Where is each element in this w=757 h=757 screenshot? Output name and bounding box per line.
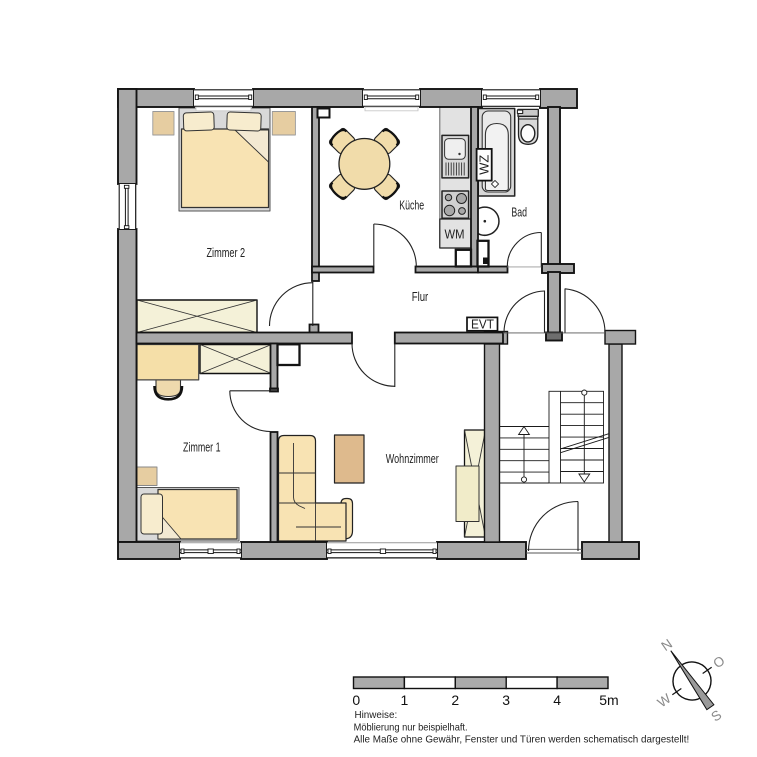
svg-text:WM: WM xyxy=(445,227,465,242)
svg-text:3: 3 xyxy=(502,692,510,708)
svg-text:0: 0 xyxy=(352,692,360,708)
svg-text:Flur: Flur xyxy=(412,289,429,304)
svg-text:Zimmer 1: Zimmer 1 xyxy=(183,440,221,455)
svg-text:Küche: Küche xyxy=(399,198,424,213)
svg-text:Wohnzimmer: Wohnzimmer xyxy=(386,451,439,466)
svg-text:Hinweise:: Hinweise: xyxy=(355,710,398,721)
svg-text:4: 4 xyxy=(553,692,561,708)
svg-text:EVT: EVT xyxy=(471,318,494,332)
svg-text:Möblierung nur beispielhaft.: Möblierung nur beispielhaft. xyxy=(354,723,468,734)
svg-text:1: 1 xyxy=(401,692,409,708)
svg-text:Alle Maße ohne Gewähr, Fenster: Alle Maße ohne Gewähr, Fenster und Türen… xyxy=(354,735,690,746)
svg-text:Bad: Bad xyxy=(511,205,527,220)
svg-text:Zimmer 2: Zimmer 2 xyxy=(206,245,245,260)
svg-text:5m: 5m xyxy=(599,692,618,708)
svg-text:WZ: WZ xyxy=(478,154,492,174)
svg-text:2: 2 xyxy=(451,692,459,708)
